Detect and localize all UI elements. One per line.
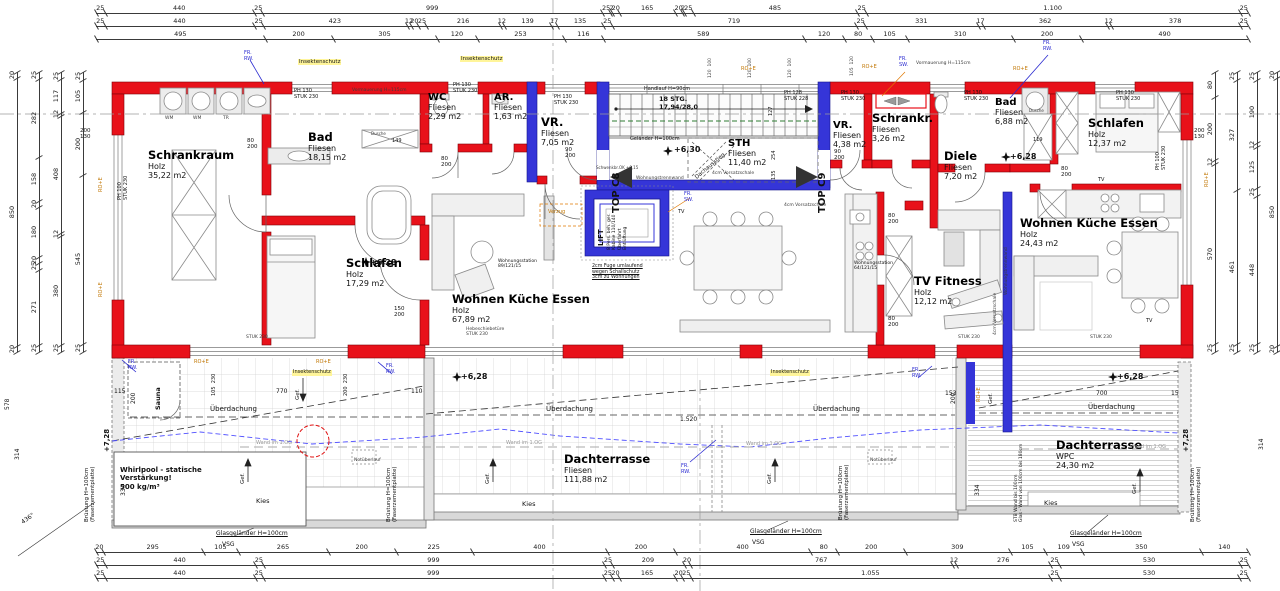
room-material: Fliesen — [564, 466, 650, 475]
room-material: Fliesen — [872, 125, 933, 134]
plan-label: Überdachung — [1088, 403, 1135, 411]
room-material: Holz — [1020, 230, 1158, 239]
room-label: DieleFliesen7,20 m2 — [944, 149, 977, 181]
dimension-chain-vertical: 25190121252544825 — [1246, 72, 1258, 352]
plan-label: 4cm Vorsatzschale — [712, 171, 754, 176]
plan-label: Kies — [256, 498, 269, 506]
dimension-value: 25 — [857, 4, 865, 12]
dimension-value: 350 — [1135, 543, 1147, 551]
plan-label: Hebeschiebetüre STUK 230 — [466, 327, 504, 338]
plan-label: 578 — [4, 399, 11, 410]
dimension-value: 25 — [52, 344, 60, 352]
plan-label: 90 200 — [565, 147, 576, 160]
plan-label: FR. RW. — [244, 51, 253, 63]
room-material: Fliesen — [541, 129, 574, 138]
dimension-value: 25 — [254, 4, 262, 12]
dimension-value: 25 — [1248, 72, 1256, 80]
dimension-value: 448 — [1248, 264, 1256, 276]
dimension-value: 423 — [329, 17, 341, 25]
room-material: Holz — [914, 288, 982, 297]
plan-label: Vormauerung H=115cm — [352, 88, 406, 93]
room-area: 111,88 m2 — [564, 475, 650, 484]
dimension-value: 440 — [173, 4, 185, 12]
plan-label: Gef. — [485, 473, 491, 484]
room-name: VR. — [541, 115, 574, 129]
plan-label: Notüberlauf — [354, 458, 381, 463]
dimension-chain-vertical: 2510520054525 — [72, 72, 84, 352]
dimension-value: 209 — [642, 556, 654, 564]
plan-label: FR. RW. — [681, 464, 690, 476]
plan-label: TR — [223, 116, 229, 121]
dimension-value: 25 — [1240, 569, 1248, 577]
dimension-value: 25 — [96, 4, 104, 12]
room-name: Schrankraum — [148, 148, 234, 162]
dimension-value: 440 — [173, 17, 185, 25]
dimension-chain-horizontal: 2029510526520022540020040080200309105109… — [96, 541, 1248, 553]
plan-label: 110 — [411, 388, 422, 395]
dimension-value: 200 — [292, 30, 304, 38]
plan-label: 200 130 — [1194, 128, 1205, 141]
dimension-chain-vertical: 802001257025 — [1204, 72, 1216, 352]
plan-label: LIFT — [597, 229, 605, 246]
plan-label: +6,30 — [674, 145, 700, 154]
room-area: 4,38 m2 — [833, 140, 866, 149]
dimension-value: 767 — [815, 556, 827, 564]
dimension-chain-vertical: 2085020 — [1266, 72, 1278, 352]
plan-label: PH 130 STUK 230 — [554, 95, 578, 107]
dimension-value: 200 — [74, 137, 82, 149]
plan-label: PH 128 STUK 228 — [784, 91, 808, 103]
dimension-value: 117 — [52, 90, 60, 102]
plan-label: Glasgeländer H=100cm — [750, 528, 822, 535]
dimension-value: 271 — [30, 301, 38, 313]
dimension-value: 25 — [96, 17, 104, 25]
room-name: Schlafen — [1088, 116, 1144, 130]
room-material: Fliesen — [944, 163, 977, 172]
dimension-value: 485 — [769, 4, 781, 12]
plan-label: Insektenschutz — [298, 59, 341, 65]
plan-label: Vormauerung H=115cm — [916, 61, 970, 66]
plan-label: 90 200 — [834, 149, 845, 162]
plan-label: TOP C8 — [611, 173, 623, 213]
dimension-value: 200 — [635, 543, 647, 551]
room-label: SchrankraumHolz35,22 m2 — [148, 148, 234, 180]
annotation-overlay: SchrankraumHolz35,22 m2BadFliesen18,15 m… — [0, 0, 1280, 591]
dimension-value: 408 — [52, 168, 60, 180]
dimension-value: 378 — [1169, 17, 1181, 25]
plan-label: Insektenschutz — [292, 370, 332, 376]
dimension-value: 25 — [604, 556, 612, 564]
dimension-value: 570 — [1206, 248, 1214, 260]
room-name: Wohnen Küche Essen — [1020, 216, 1158, 230]
plan-label: Glasgeländer H=100cm — [216, 530, 288, 537]
dimension-value: 200 — [865, 543, 877, 551]
dimension-value: 850 — [1268, 206, 1276, 218]
room-area: 3,26 m2 — [872, 134, 933, 143]
plan-label: 436° — [20, 512, 36, 526]
dimension-value: 295 — [146, 543, 158, 551]
plan-label: 80 200 — [441, 156, 452, 169]
dimension-value: 80 — [1206, 80, 1214, 88]
room-material: Holz — [346, 270, 402, 279]
dimension-chain-vertical: 2085020 — [6, 72, 18, 352]
plan-label: Brüstung H=100cm (Faserzementplatte) — [84, 466, 97, 522]
room-label: DachterrasseFliesen111,88 m2 — [564, 452, 650, 484]
plan-label: 200 230 — [344, 374, 350, 396]
room-name: Schrankr. — [872, 111, 933, 125]
dimension-value: 530 — [1143, 569, 1155, 577]
plan-label: Überdachung — [813, 405, 860, 413]
dimension-value: 25 — [96, 556, 104, 564]
room-name: Diele — [944, 149, 977, 163]
room-name: STH — [728, 138, 766, 149]
dimension-value: 25 — [1240, 4, 1248, 12]
plan-label: PH 130 STUK 230 — [294, 89, 318, 101]
room-area: 24,30 m2 — [1056, 461, 1142, 470]
room-name: AR. — [494, 92, 527, 103]
plan-label: RO+E — [1013, 67, 1028, 73]
plan-label: 4cm Vorsatzschale — [784, 203, 826, 208]
room-label: SchlafenHolz12,37 m2 — [1088, 116, 1144, 148]
dimension-value: 400 — [533, 543, 545, 551]
plan-label: Glasgeländer H=100cm — [1070, 530, 1142, 537]
plan-label: Wohnungsstation 89/121/15 — [498, 259, 537, 270]
dimension-value: 25 — [74, 72, 82, 80]
plan-label: Dusche — [371, 132, 386, 137]
dimension-value: 25 — [418, 17, 426, 25]
dimension-value: 20 — [1268, 345, 1276, 353]
plan-label: +7,28 — [1182, 429, 1190, 452]
room-label: AR.Fliesen1,63 m2 — [494, 92, 527, 121]
plan-label: Geländer H=100cm — [630, 137, 680, 143]
room-material: Fliesen — [308, 144, 346, 153]
dimension-value: 105 — [74, 90, 82, 102]
dimension-chain-vertical: 2528215820180202527125 — [28, 72, 40, 352]
dimension-value: 158 — [30, 173, 38, 185]
room-name: Bad — [995, 97, 1028, 108]
dimension-value: 327 — [1228, 129, 1236, 141]
dimension-value: 310 — [954, 30, 966, 38]
dimension-value: 25 — [1050, 569, 1058, 577]
room-material: Fliesen — [995, 108, 1028, 117]
dimension-value: 116 — [577, 30, 589, 38]
plan-label: TV — [1146, 319, 1152, 325]
dimension-value: 200 — [1041, 30, 1053, 38]
plan-label: TV — [1098, 178, 1104, 184]
plan-label: Wand im 1.OG — [1130, 445, 1166, 451]
plan-label: +6,28 — [370, 258, 396, 267]
plan-label: 119 — [1033, 138, 1043, 144]
dimension-chain-horizontal: 49520030512025311658912080105310200490 — [96, 28, 1248, 40]
plan-label: FR. RW. — [128, 360, 137, 372]
plan-label: +7,28 — [103, 429, 111, 452]
plan-label: Wohnungstrennwand — [636, 176, 684, 181]
plan-label: 200 — [130, 393, 137, 404]
room-name: Dachterrasse — [564, 452, 650, 466]
room-area: 17,29 m2 — [346, 279, 402, 288]
room-label: BadFliesen18,15 m2 — [308, 130, 346, 162]
dimension-value: 999 — [427, 569, 439, 577]
room-name: TV Fitness — [914, 274, 982, 288]
dimension-value: 999 — [426, 4, 438, 12]
plan-label: Wand im 1.OG — [256, 441, 292, 447]
plan-label: PH 130 STUK 230 — [841, 91, 865, 103]
room-label: STHFliesen11,40 m2 — [728, 138, 766, 167]
dimension-chain-horizontal: 25440259992520920767122762553025 — [96, 554, 1248, 566]
plan-label: Brüstung H=100cm (Faserzementplatte) — [386, 466, 399, 522]
plan-label: Wohnungstrennwand — [1004, 247, 1009, 295]
dimension-value: 25 — [1050, 556, 1058, 564]
dimension-value: 25 — [30, 344, 38, 352]
plan-label: 334 — [974, 485, 981, 496]
plan-label: Wand im 1.OG — [746, 442, 782, 448]
room-area: 12,12 m2 — [914, 297, 982, 306]
plan-label: 334 — [120, 485, 127, 496]
dimension-value: 105 — [1021, 543, 1033, 551]
plan-label: 115 — [114, 388, 125, 395]
room-area: 12,37 m2 — [1088, 139, 1144, 148]
room-area: 1,63 m2 — [494, 112, 527, 121]
dimension-value: 105 — [883, 30, 895, 38]
plan-label: 127 — [769, 106, 775, 116]
dimension-value: 440 — [173, 556, 185, 564]
plan-label: Dusche — [1029, 109, 1044, 114]
plan-label: 80 200 — [888, 316, 899, 329]
dimension-value: 25 — [684, 4, 692, 12]
plan-label: +6,28 — [461, 372, 487, 381]
plan-label: Brüstung H=100cm (Faserzementplatte) — [1190, 466, 1203, 522]
dimension-value: 461 — [1228, 260, 1236, 272]
plan-label: RO+E — [862, 65, 877, 71]
dimension-chain-horizontal: 2544025999252016520251.0552553025 — [96, 567, 1248, 579]
dimension-value: 216 — [457, 17, 469, 25]
dimension-value: 140 — [1218, 543, 1230, 551]
plan-label: RO+E — [194, 360, 209, 366]
dimension-value: 105 — [214, 543, 226, 551]
plan-label: TV — [678, 210, 684, 216]
room-name: VR. — [833, 120, 866, 131]
room-material: WPC — [1056, 452, 1142, 461]
plan-label: 314 — [14, 449, 21, 460]
dimension-value: 25 — [1206, 344, 1214, 352]
room-area: 7,20 m2 — [944, 172, 977, 181]
plan-label: Gef. — [767, 473, 773, 484]
plan-label: 135 — [772, 170, 778, 180]
plan-label: Verzug — [548, 210, 565, 216]
dimension-value: 490 — [1158, 30, 1170, 38]
dimension-value: 25 — [1248, 344, 1256, 352]
room-material: Fliesen — [494, 103, 527, 112]
dimension-value: 495 — [174, 30, 186, 38]
room-label: Schrankr.Fliesen3,26 m2 — [872, 111, 933, 143]
dimension-value: 125 — [1248, 161, 1256, 173]
room-area: 35,22 m2 — [148, 171, 234, 180]
room-area: 18,15 m2 — [308, 153, 346, 162]
plan-label: 120 100 — [708, 58, 713, 78]
plan-label: 80 200 — [247, 138, 258, 151]
plan-label: STUK 230 — [1090, 335, 1112, 340]
plan-label: Wand im 1.OG — [506, 441, 542, 447]
room-area: 67,89 m2 — [452, 315, 590, 324]
plan-label: +6,28 — [1010, 152, 1036, 161]
plan-label: Wohnungsstation 64/121/15 — [854, 261, 893, 272]
plan-label: 150 200 — [394, 306, 405, 319]
plan-label: 200 — [950, 393, 957, 404]
plan-label: 2cm Fuge umlaufend wegen Schallschutz 3c… — [592, 264, 643, 281]
plan-label: FR. RW. — [386, 364, 395, 376]
dimension-value: 25 — [857, 17, 865, 25]
room-name: Wohnen Küche Essen — [452, 292, 590, 306]
plan-label: Kies — [1044, 500, 1057, 508]
room-area: 6,88 m2 — [995, 117, 1028, 126]
plan-label: 149 — [392, 139, 402, 145]
dimension-value: 25 — [1228, 72, 1236, 80]
dimension-value: 362 — [1039, 17, 1051, 25]
plan-label: 700 — [1096, 390, 1107, 397]
room-label: WCFliesen2,29 m2 — [428, 92, 461, 121]
plan-label: Handlauf H=90cm — [644, 87, 690, 93]
dimension-value: 440 — [173, 569, 185, 577]
dimension-value: 165 — [641, 569, 653, 577]
dimension-value: 225 — [427, 543, 439, 551]
plan-label: 80 200 — [888, 213, 899, 226]
dimension-chain-horizontal: 25440259992522016520225485251.10025 — [96, 2, 1248, 14]
dimension-value: 999 — [427, 556, 439, 564]
room-material: Fliesen — [833, 131, 866, 140]
plan-label: Insektenschutz — [460, 56, 503, 62]
room-area: 24,43 m2 — [1020, 239, 1158, 248]
plan-label: WM — [193, 116, 201, 121]
plan-label: STB Wand bis 100cm Glas - Wand von 100cm… — [1014, 444, 1025, 522]
dimension-value: 25 — [74, 344, 82, 352]
plan-label: FR. RW. — [912, 368, 921, 380]
plan-label: +6,28 — [1117, 372, 1143, 381]
plan-label: FR. SW. — [684, 192, 693, 204]
dimension-chain-vertical: 25117124081238025 — [50, 72, 62, 352]
dimension-value: 25 — [1228, 344, 1236, 352]
dimension-value: 589 — [697, 30, 709, 38]
room-label: VR.Fliesen4,38 m2 — [833, 120, 866, 149]
room-name: Bad — [308, 130, 346, 144]
room-area: 11,40 m2 — [728, 158, 766, 167]
room-material: Holz — [452, 306, 590, 315]
dimension-chain-horizontal: 2544025423122025216121391713525719253311… — [96, 15, 1248, 27]
dimension-chain-vertical: 2532746125 — [1226, 72, 1238, 352]
plan-label: PH 130 STUK 230 — [1116, 91, 1140, 103]
plan-label: Kies — [522, 501, 535, 509]
plan-label: 8 Pers. beh. ger. Kabine 110/140 Überfah… — [607, 213, 628, 250]
plan-label: 105 230 — [212, 374, 218, 396]
room-label: TV FitnessHolz12,12 m2 — [914, 274, 982, 306]
plan-label: PH 130 STUK 230 — [453, 83, 477, 95]
dimension-value: 25 — [603, 17, 611, 25]
dimension-value: 309 — [951, 543, 963, 551]
dimension-value: 190 — [1248, 105, 1256, 117]
plan-label: Überdachung — [546, 405, 593, 413]
room-material: Holz — [148, 162, 234, 171]
plan-label: Sauna — [155, 387, 163, 410]
plan-label: RO+E — [316, 360, 331, 366]
dimension-value: 331 — [915, 17, 927, 25]
dimension-value: 120 — [818, 30, 830, 38]
plan-label: FR. RW. — [1043, 41, 1052, 53]
plan-label: 4cm Vorsatzschale — [993, 293, 998, 335]
dimension-value: 20 — [8, 345, 16, 353]
dimension-value: 850 — [8, 206, 16, 218]
dimension-value: 80 — [854, 30, 862, 38]
plan-label: 18 STG. 17,94/28,0 — [659, 96, 698, 111]
plan-label: PH 100 STUK 230 — [1156, 146, 1168, 170]
plan-label: Brüstung H=100cm (Faserzementplatte) — [838, 464, 851, 520]
plan-label: Gef. — [988, 393, 994, 404]
dimension-value: 305 — [378, 30, 390, 38]
dimension-value: 282 — [30, 112, 38, 124]
dimension-value: 530 — [1143, 556, 1155, 564]
room-label: DachterrasseWPC24,30 m2 — [1056, 438, 1142, 470]
dimension-value: 80 — [820, 543, 828, 551]
plan-label: RO+E — [99, 282, 105, 297]
dimension-value: 180 — [30, 226, 38, 238]
plan-label: 314 — [1258, 439, 1265, 450]
dimension-value: 545 — [74, 253, 82, 265]
plan-label: 105 120 — [850, 56, 855, 76]
plan-label: Schwenkbr.OK +0,15 — [596, 166, 638, 171]
plan-label: 15 — [1171, 390, 1179, 397]
plan-label: 80 200 — [1061, 166, 1072, 179]
dimension-value: 1.100 — [1043, 4, 1062, 12]
dimension-value: 25 — [96, 569, 104, 577]
room-area: 2,29 m2 — [428, 112, 461, 121]
dimension-value: 1.055 — [861, 569, 880, 577]
dimension-value: 400 — [736, 543, 748, 551]
dimension-value: 380 — [52, 284, 60, 296]
plan-label: Überdachung — [210, 405, 257, 413]
room-material: Holz — [1088, 130, 1144, 139]
dimension-value: 25 — [1240, 17, 1248, 25]
plan-label: FR. SW. — [899, 57, 908, 69]
plan-label: 1.520 — [680, 416, 697, 423]
plan-label: Notüberlauf — [870, 458, 897, 463]
plan-label: RO+E — [977, 387, 983, 402]
room-label: Wohnen Küche EssenHolz67,89 m2 — [452, 292, 590, 324]
plan-label: PH 130 STUK 230 — [964, 91, 988, 103]
room-material: Fliesen — [428, 103, 461, 112]
dimension-value: 25 — [255, 569, 263, 577]
plan-label: 120 100 — [788, 58, 793, 78]
room-area: 7,05 m2 — [541, 138, 574, 147]
plan-label: 254 — [772, 150, 778, 160]
plan-label: WM — [165, 116, 173, 121]
plan-label: Dachausstieg — [694, 152, 727, 181]
room-label: BadFliesen6,88 m2 — [995, 97, 1028, 126]
room-label: Wohnen Küche EssenHolz24,43 m2 — [1020, 216, 1158, 248]
dimension-value: 265 — [277, 543, 289, 551]
dimension-value: 120 — [451, 30, 463, 38]
plan-label: Insektenschutz — [770, 370, 810, 376]
plan-label: Gef. — [240, 473, 246, 484]
dimension-value: 253 — [514, 30, 526, 38]
room-label: VR.Fliesen7,05 m2 — [541, 115, 574, 147]
dimension-value: 25 — [1240, 556, 1248, 564]
plan-label: 770 — [276, 388, 287, 395]
dimension-value: 276 — [997, 556, 1009, 564]
plan-label: STUK 230 — [958, 335, 980, 340]
plan-label: Gef. — [1132, 483, 1138, 494]
dimension-value: 719 — [728, 17, 740, 25]
dimension-value: 25 — [254, 17, 262, 25]
dimension-value: 25 — [255, 556, 263, 564]
dimension-value: 25 — [1248, 188, 1256, 196]
